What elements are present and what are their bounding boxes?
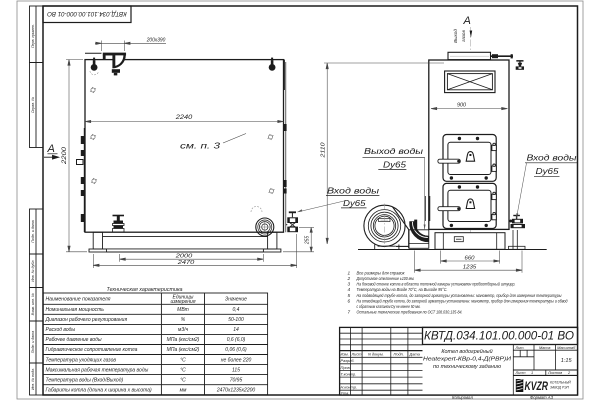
svg-text:На отводящей трубе котла, до з: На отводящей трубе котла, до запорной ар… [357,297,568,303]
svg-text:не более 220: не более 220 [221,357,252,363]
svg-text:255: 255 [304,236,310,246]
svg-text:КВТД.034.101.00.000-01 ВО: КВТД.034.101.00.000-01 ВО [47,10,127,17]
svg-text:0,4: 0,4 [233,307,240,313]
svg-text:1: 1 [348,270,351,275]
svg-text:115: 115 [232,367,240,373]
svg-text:Копировал: Копировал [452,395,473,400]
svg-text:Расход воды: Расход воды [46,327,76,333]
svg-text:Гидравлическое сопротивление к: Гидравлическое сопротивление котла [46,347,138,353]
svg-text:м3/ч: м3/ч [178,327,189,333]
svg-text:Габариты котла (длина х ширина: Габариты котла (длина х ширина х высота) [46,387,153,393]
svg-text:°С: °С [180,357,186,363]
svg-text:Формат А3: Формат А3 [530,395,554,400]
svg-text:50-100: 50-100 [228,317,244,323]
svg-text:660: 660 [465,255,475,261]
svg-text:2110: 2110 [320,142,326,158]
svg-text:Изм.: Изм. [341,352,349,357]
svg-text:Все размеры для справок: Все размеры для справок [357,270,406,275]
svg-text:по техническому заданию: по техническому заданию [433,364,501,370]
svg-text:Дата: Дата [409,352,421,357]
svg-text:5: 5 [348,293,351,298]
svg-text:газов: газов [461,30,466,42]
svg-text:МПа (кгс/см2): МПа (кгс/см2) [167,337,200,343]
svg-text:Выход: Выход [453,29,458,43]
svg-text:Остальные технические требован: Остальные технические требования по ОСТ … [357,310,463,315]
svg-text:Температура воды (Вход/Выход): Температура воды (Вход/Выход) [46,377,124,383]
svg-text:2: 2 [347,276,351,281]
svg-text:Лист: Лист [515,370,527,375]
svg-text:1: 1 [531,370,533,375]
svg-text:%: % [181,317,186,323]
svg-text:см. п. 3: см. п. 3 [180,142,221,151]
svg-text:900: 900 [457,102,467,108]
svg-text:А: А [463,15,471,27]
svg-text:Диапазон рабочего регулировани: Диапазон рабочего регулирования [45,317,128,323]
svg-text:мм: мм [180,387,187,393]
svg-text:Heatexpert-КВр-0,4-Д(РВР)И: Heatexpert-КВр-0,4-Д(РВР)И [423,356,511,362]
svg-text:КВТД.034.101.00.000-01 ВО: КВТД.034.101.00.000-01 ВО [424,331,574,343]
svg-text:Вход воды: Вход воды [527,153,578,163]
svg-text:Утв.: Утв. [341,390,350,395]
svg-text:На подводящей трубе котла, до: На подводящей трубе котла, до запорной а… [357,292,562,298]
svg-text:А: А [47,143,55,155]
svg-text:Температура уходящих газов: Температура уходящих газов [46,357,117,363]
svg-text:измерения: измерения [170,299,195,305]
svg-text:Техническая характеристика: Техническая характеристика [107,287,183,293]
svg-text:°С: °С [180,377,186,383]
svg-text:6: 6 [348,298,351,303]
svg-text:KVZR: KVZR [525,379,549,393]
svg-text:Рабочее давление воды: Рабочее давление воды [46,337,102,343]
svg-text:2000: 2000 [174,254,192,260]
svg-text:На боковой стенке котла в обла: На боковой стенке котла в области топочн… [357,281,516,287]
svg-text:Лист: Лист [351,352,363,357]
svg-text:0,06 (0,6): 0,06 (0,6) [225,347,247,353]
svg-text:Dy65: Dy65 [343,198,366,208]
svg-text:7: 7 [348,310,351,315]
svg-text:Наименование показателя: Наименование показателя [46,297,111,303]
svg-text:Подп. и дата: Подп. и дата [31,220,35,243]
svg-text:200х390: 200х390 [146,37,165,43]
svg-text:Масса: Масса [539,345,551,350]
svg-text:Пров.: Пров. [341,365,351,370]
svg-text:Перв. примен.: Перв. примен. [31,24,35,48]
svg-text:Масштаб: Масштаб [557,345,576,350]
svg-text:Dy65: Dy65 [383,159,406,169]
svg-text:3: 3 [348,282,351,287]
svg-text:2470х1235х2200: 2470х1235х2200 [216,387,256,393]
svg-text:Инв. № дубл.: Инв. № дубл. [31,260,35,282]
svg-text:Подп. и дата: Подп. и дата [31,331,35,354]
svg-text:Т.контр.: Т.контр. [341,371,357,376]
svg-text:Вход воды: Вход воды [327,186,380,196]
svg-text:Листов: Листов [547,370,562,375]
svg-text:Лит.: Лит. [514,345,524,350]
svg-text:2200: 2200 [62,146,68,165]
svg-text:Dy65: Dy65 [536,166,559,176]
svg-text:Разраб.: Разраб. [341,358,355,363]
svg-text:Н.контр.: Н.контр. [341,385,357,390]
svg-text:Номинальная мощность: Номинальная мощность [46,307,105,313]
svg-text:ЗАВОД РЭП: ЗАВОД РЭП [550,386,570,390]
svg-text:0,6 (6,0): 0,6 (6,0) [227,337,246,343]
svg-text:Выход воды: Выход воды [364,146,424,156]
svg-text:с обратным клапаном Dу не мене: с обратным клапаном Dу не менее 50 мм. [357,304,421,309]
svg-text:2470: 2470 [176,260,194,266]
svg-text:Инв. № подл.: Инв. № подл. [31,368,35,390]
svg-text:Допустимое отклонение ±100 мм.: Допустимое отклонение ±100 мм. [356,276,415,281]
svg-text:Справ. №: Справ. № [31,97,35,113]
svg-text:Максимальная рабочая температу: Максимальная рабочая температура воды [46,367,149,373]
svg-text:Температура воды на Входе 70°С: Температура воды на Входе 70°С, на Выход… [357,287,448,292]
svg-text:Значение: Значение [225,297,247,303]
svg-text:70/95: 70/95 [230,377,243,383]
svg-text:1235: 1235 [463,264,477,270]
svg-text:2240: 2240 [175,115,194,121]
svg-text:Подп.: Подп. [394,352,404,357]
svg-text:МВт: МВт [177,307,189,313]
svg-text:°С: °С [180,367,186,373]
svg-text:Взам. инв. №: Взам. инв. № [31,293,35,315]
svg-text:14: 14 [233,327,239,333]
svg-text:1:15: 1:15 [561,358,573,364]
svg-text:N докум.: N докум. [368,352,384,357]
svg-text:КОТЕЛЬНЫЙ: КОТЕЛЬНЫЙ [550,381,571,385]
svg-text:МПа (кгс/см2): МПа (кгс/см2) [167,347,200,353]
svg-text:Котел водогрейный: Котел водогрейный [441,348,492,355]
svg-text:4: 4 [348,287,351,292]
